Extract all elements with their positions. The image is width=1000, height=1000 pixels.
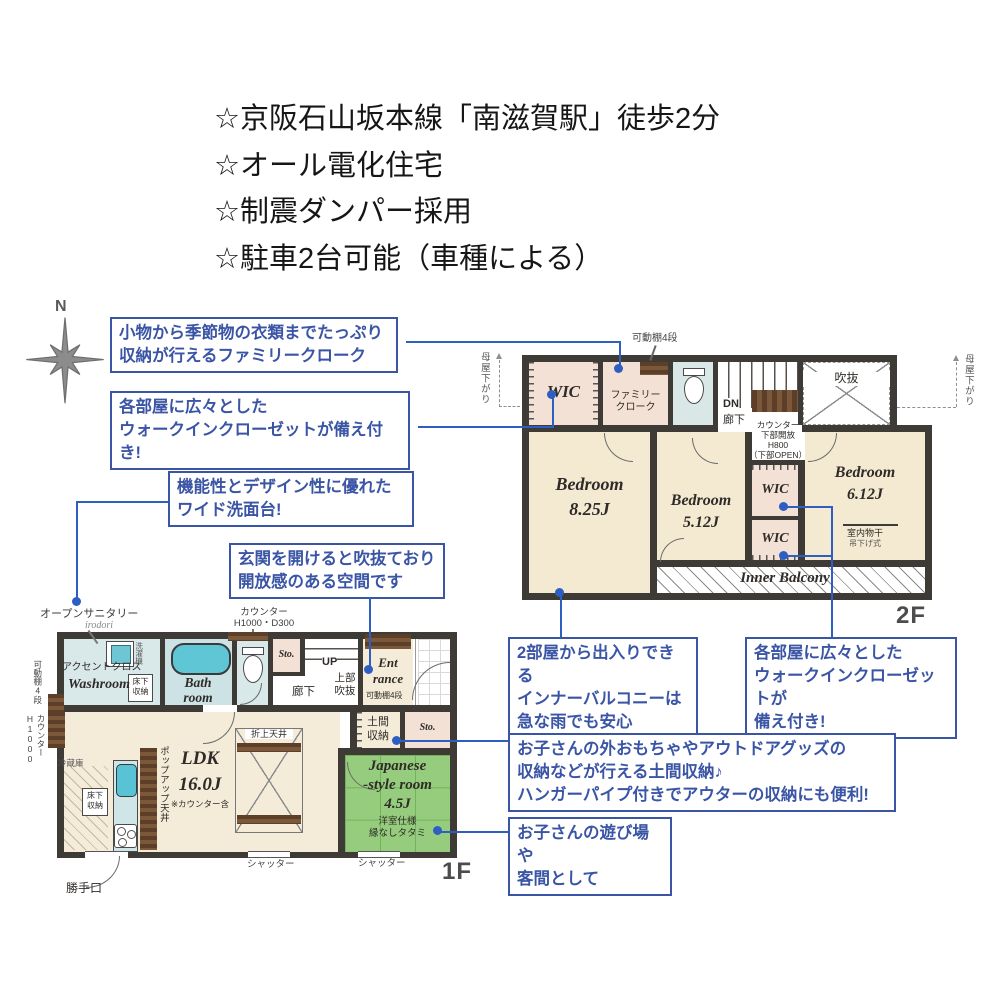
moya-arrow — [496, 353, 502, 359]
counter-top-piece — [228, 632, 268, 641]
wall — [338, 748, 345, 852]
oriage-label: 折上天井 — [245, 729, 293, 739]
counter-under-stairs — [752, 390, 798, 412]
room-label-family-cloak: ファミリー クローク — [601, 390, 670, 413]
wall — [350, 712, 357, 748]
stairs-dn-label: DN — [723, 398, 739, 411]
counter-top-label: カウンター H1000・D300 — [220, 607, 308, 629]
connector-line — [77, 501, 168, 503]
connector-dot — [364, 665, 373, 674]
wall — [232, 639, 237, 705]
connector-dot — [614, 364, 623, 373]
room-label-bedroom1: Bedroom 8.25J — [529, 472, 650, 522]
counter-note-2f: カウンター 下部開放 H800 （下部OPEN） — [746, 420, 810, 460]
shelf-note-2f: 可動棚4段 — [632, 333, 678, 345]
connector-dot — [779, 551, 788, 560]
stove-burner — [127, 830, 136, 839]
connector-line — [369, 597, 371, 668]
callout-wic-right: 各部屋に広々とした ウォークインクローゼットが 備え付き! — [745, 637, 957, 739]
open-sanitary-label: オープンサニタリー — [40, 608, 138, 621]
moya-sagari-left-label: 母屋下がり — [478, 352, 489, 418]
left-shelf-label: 可動棚4段 — [32, 660, 42, 712]
room-label-bath: Bath room — [168, 675, 228, 705]
oriage-band — [237, 815, 301, 824]
callout-family-cloak: 小物から季節物の衣類までたっぷり 収納が行えるファミリークローク — [110, 317, 398, 373]
hall-label-1f: 廊下 — [292, 686, 315, 699]
door-gap — [203, 705, 237, 712]
room-label-wic: WIC — [529, 382, 598, 402]
moya-arrow — [953, 355, 959, 361]
highlight-line: ☆制震ダンパー採用 — [214, 189, 720, 236]
upper-void-label: 上部 吹抜 — [332, 672, 358, 697]
wall — [650, 432, 657, 593]
wall — [529, 425, 718, 432]
callout-doma: お子さんの外おもちゃやアウトドアグッズの 収納などが行える土間収納♪ ハンガーパ… — [508, 733, 896, 812]
shelf-2f — [640, 362, 668, 375]
connector-dot — [547, 390, 556, 399]
entrance-shelf-label: 可動棚4段 — [366, 691, 402, 700]
wall — [300, 639, 305, 672]
callout-guest: お子さんの遊び場や 客間として — [508, 817, 672, 896]
open-sanitary-sub: irodori — [40, 620, 158, 632]
wall — [657, 560, 925, 567]
stove-burner — [117, 827, 126, 836]
wall — [273, 672, 305, 676]
wall — [345, 748, 450, 755]
connector-dot — [72, 597, 81, 606]
inner-balcony-label: Inner Balcony — [700, 570, 870, 587]
moya-dash — [499, 406, 520, 407]
moya-dash — [499, 360, 500, 407]
highlight-line: ☆オール電化住宅 — [214, 143, 720, 190]
stove-burner — [118, 838, 127, 847]
shutter-window — [248, 851, 290, 858]
doma-label: 土間 収納 — [360, 715, 396, 743]
wall — [160, 639, 165, 705]
highlight-line: ☆駐車2台可能（車種による） — [214, 236, 720, 283]
connector-dot — [555, 588, 564, 597]
wall-counter — [48, 712, 65, 748]
stairs-up-label: UP — [322, 656, 337, 669]
monohoshi-bar — [843, 524, 898, 526]
connector-line — [560, 595, 562, 637]
connector-dot — [392, 736, 401, 745]
roof-cut — [897, 348, 942, 425]
wall — [890, 355, 897, 425]
popup-ceiling-label: ポップアップ天井 — [157, 746, 168, 832]
wall — [752, 516, 798, 520]
moya-dash — [897, 407, 956, 408]
callout-inner-balcony: 2部屋から出入りできる インナーバルコニーは 急な雨でも安心 — [508, 637, 698, 739]
room-label-wic-c: WIC — [752, 531, 798, 547]
wall — [752, 460, 798, 465]
kitchen-sink — [116, 764, 137, 797]
shutter-window — [358, 851, 400, 858]
highlight-line: ☆京阪石山坂本線「南滋賀駅」徒歩2分 — [214, 96, 720, 143]
callout-wic-left: 各部屋に広々とした ウォークインクローゼットが備え付き! — [110, 391, 410, 470]
header-highlights: ☆京阪石山坂本線「南滋賀駅」徒歩2分 ☆オール電化住宅 ☆制震ダンパー採用 ☆駐… — [214, 96, 720, 282]
floor-label-2f: 2F — [896, 602, 926, 630]
accent-cloth-label: アクセントクロス — [62, 662, 142, 674]
moya-sagari-right-label: 母屋下がり — [962, 354, 973, 420]
toilet-tank-2f — [683, 368, 705, 376]
bathtub — [171, 643, 231, 675]
toilet-tank-1f — [242, 647, 264, 655]
monohoshi-sub-label: 吊下げ式 — [805, 539, 925, 548]
hanger-ticks — [752, 465, 798, 470]
hall-label-2f: 廊下 — [723, 414, 745, 427]
room-label-sto-b: Sto. — [405, 722, 450, 734]
connector-line — [406, 341, 621, 343]
compass-rose-icon — [23, 316, 107, 408]
fridge-label: 冷蔵庫 — [58, 759, 84, 769]
wall — [798, 460, 805, 567]
washer-label: 洗濯機 — [134, 642, 143, 668]
connector-dot — [433, 826, 442, 835]
underfloor-b-label: 床下 収納 — [82, 791, 108, 810]
room-label-washroom: Washroom — [68, 677, 130, 693]
flyer-page: ☆京阪石山坂本線「南滋賀駅」徒歩2分 ☆オール電化住宅 ☆制震ダンパー採用 ☆駐… — [0, 0, 1000, 1000]
connector-line — [831, 506, 833, 637]
callout-vanity: 機能性とデザイン性に優れた ワイド洗面台! — [168, 471, 414, 527]
connector-line — [400, 740, 508, 742]
monohoshi-label: 室内物干 — [805, 528, 925, 538]
entrance-shelf — [365, 634, 411, 649]
left-counter-label: カウンター H1000 — [24, 714, 46, 770]
wall — [64, 705, 450, 712]
connector-dot — [779, 502, 788, 511]
connector-line — [786, 555, 833, 557]
room-label-bedroom3: Bedroom 6.12J — [805, 462, 925, 506]
wall — [802, 425, 932, 432]
connector-line — [76, 501, 78, 600]
backdoor-label: 勝手口 — [66, 882, 102, 896]
floor-label-1f: 1F — [442, 858, 472, 886]
wall — [358, 639, 363, 705]
room-label-sto-a: Sto. — [273, 649, 300, 661]
connector-line — [786, 506, 833, 508]
connector-line — [552, 396, 554, 428]
connector-line — [418, 426, 554, 428]
room-label-bedroom2: Bedroom 5.12J — [657, 490, 745, 534]
callout-entrance-void: 玄関を開けると吹抜ており 開放感のある空間です — [229, 543, 445, 599]
moya-dash — [956, 362, 957, 407]
underfloor-a-label: 床下 収納 — [128, 677, 153, 696]
room-label-jroom: Japanese -style room 4.5J — [345, 757, 450, 814]
compass-north-label: N — [55, 298, 67, 316]
wall — [713, 362, 718, 425]
connector-line — [441, 831, 508, 833]
shutter-b-label: シャッター — [358, 859, 406, 870]
room-label-wic-b: WIC — [752, 482, 798, 498]
shutter-a-label: シャッター — [247, 860, 295, 871]
void-label: 吹抜 — [803, 372, 890, 386]
